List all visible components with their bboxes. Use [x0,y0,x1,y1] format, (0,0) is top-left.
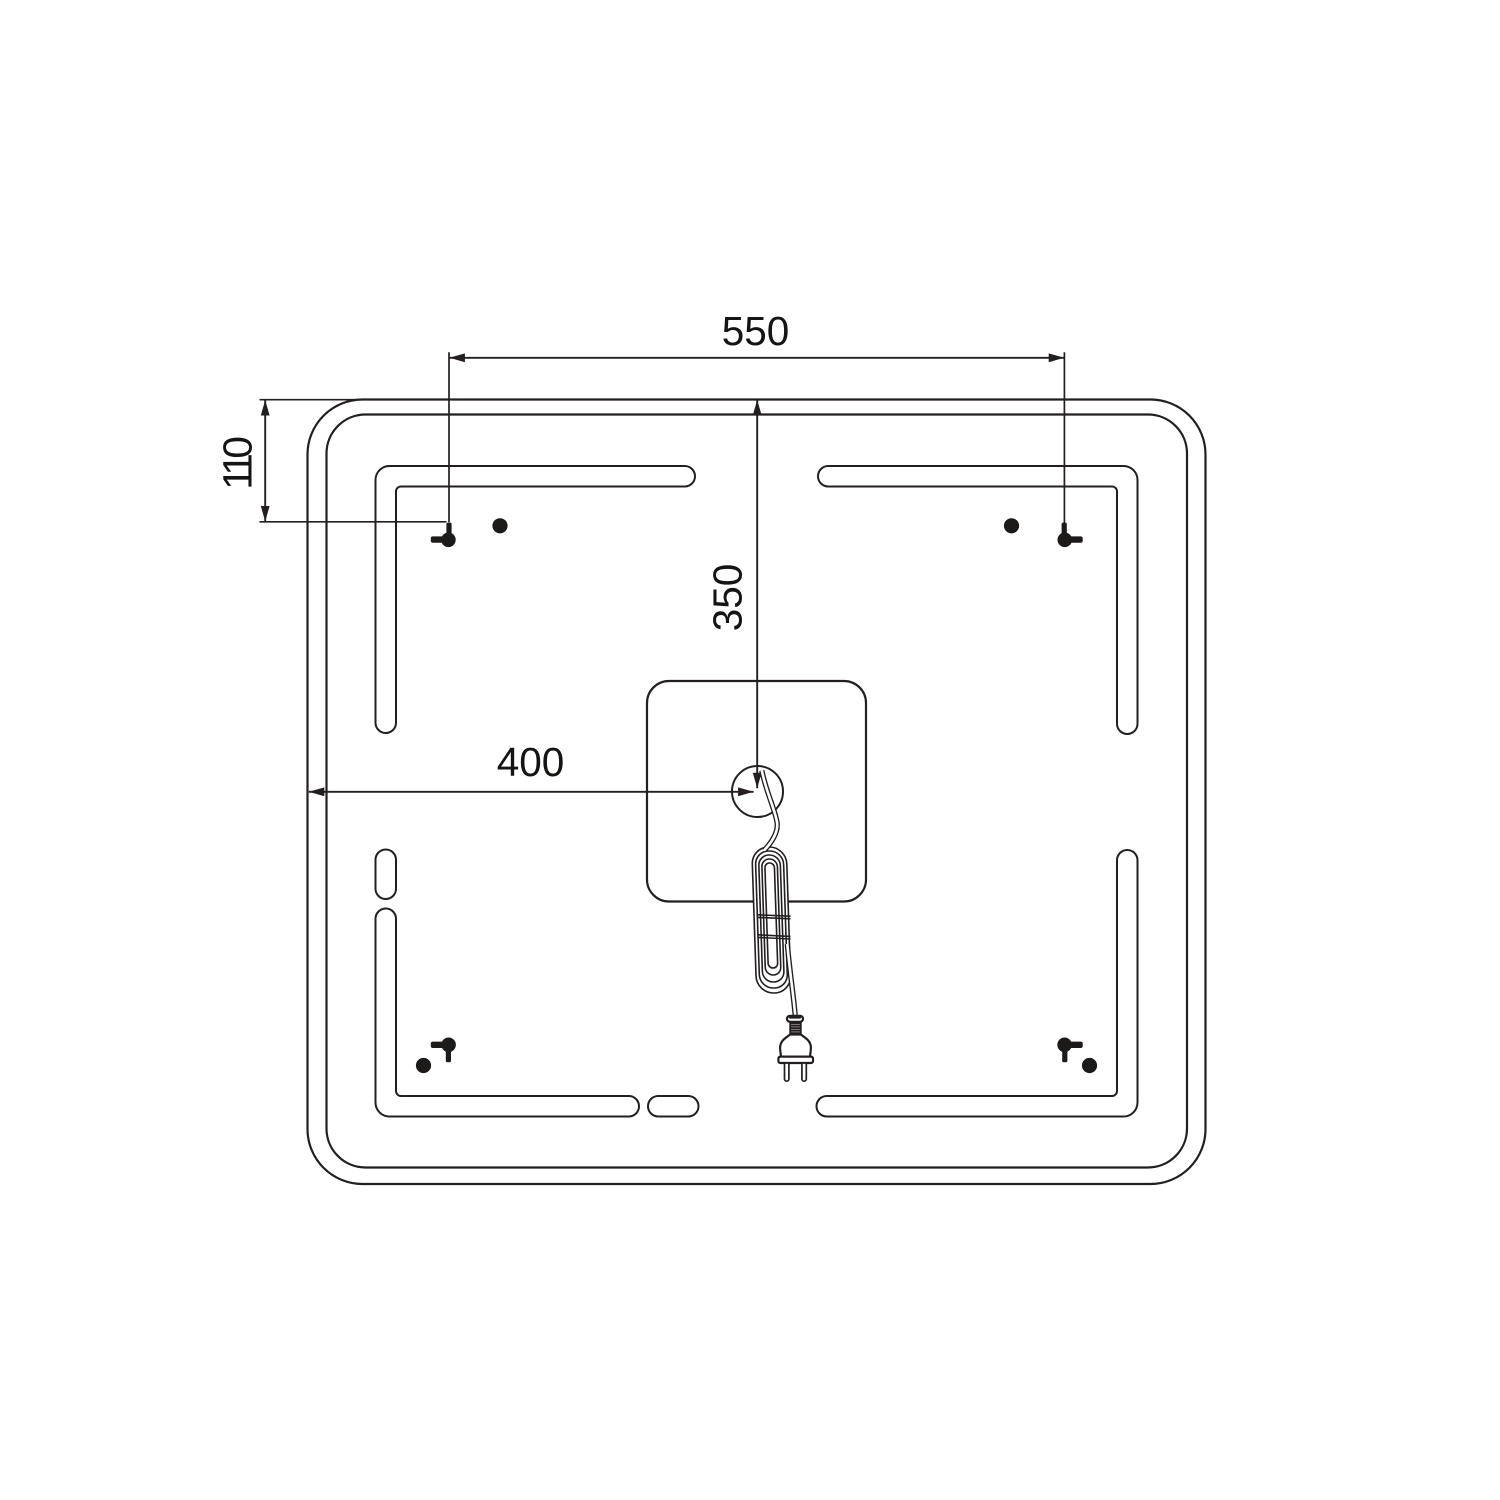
svg-text:110: 110 [215,436,261,490]
svg-text:550: 550 [722,308,790,354]
svg-text:350: 350 [705,564,751,632]
svg-text:400: 400 [497,739,565,785]
